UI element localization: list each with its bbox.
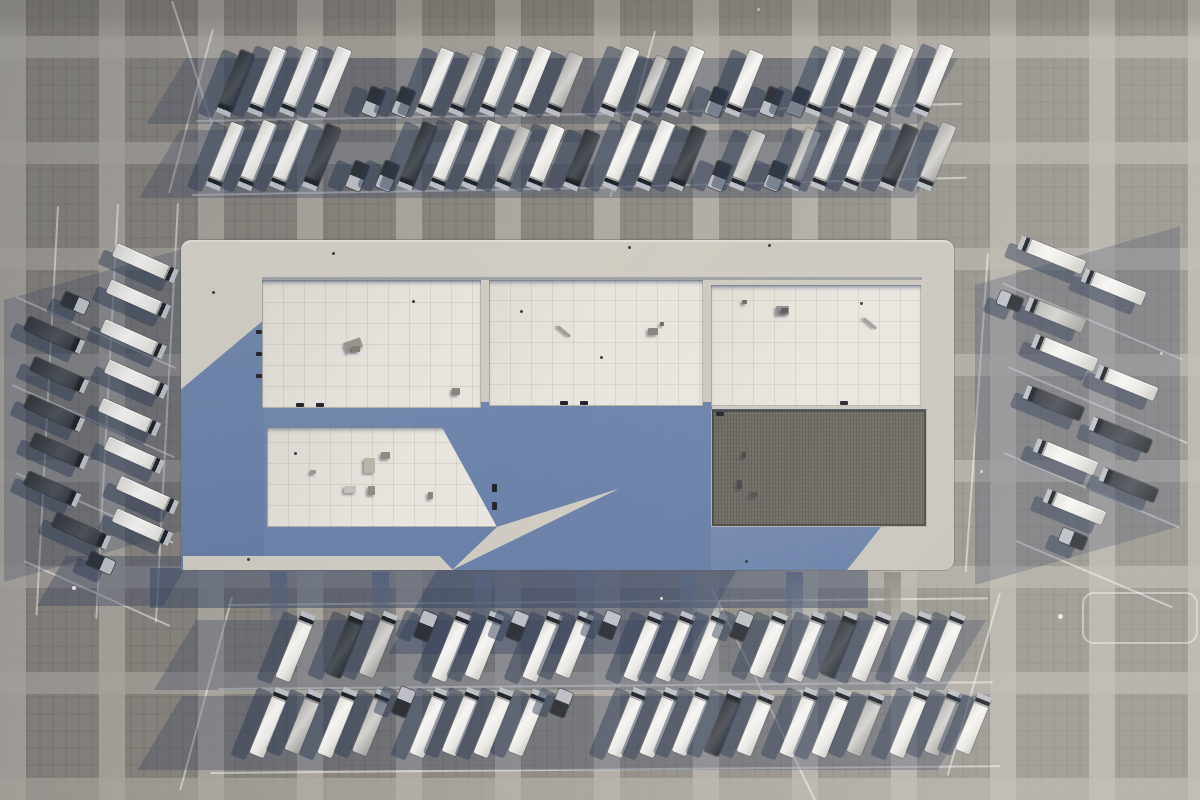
ground-debris [660, 597, 663, 600]
ground-debris [980, 470, 983, 473]
ground-debris [72, 586, 76, 590]
ground-objects-layer [0, 0, 1200, 800]
aerial-scene [0, 0, 1200, 800]
ground-debris [757, 8, 760, 11]
ground-debris [1160, 352, 1163, 355]
ground-debris [1058, 614, 1063, 619]
